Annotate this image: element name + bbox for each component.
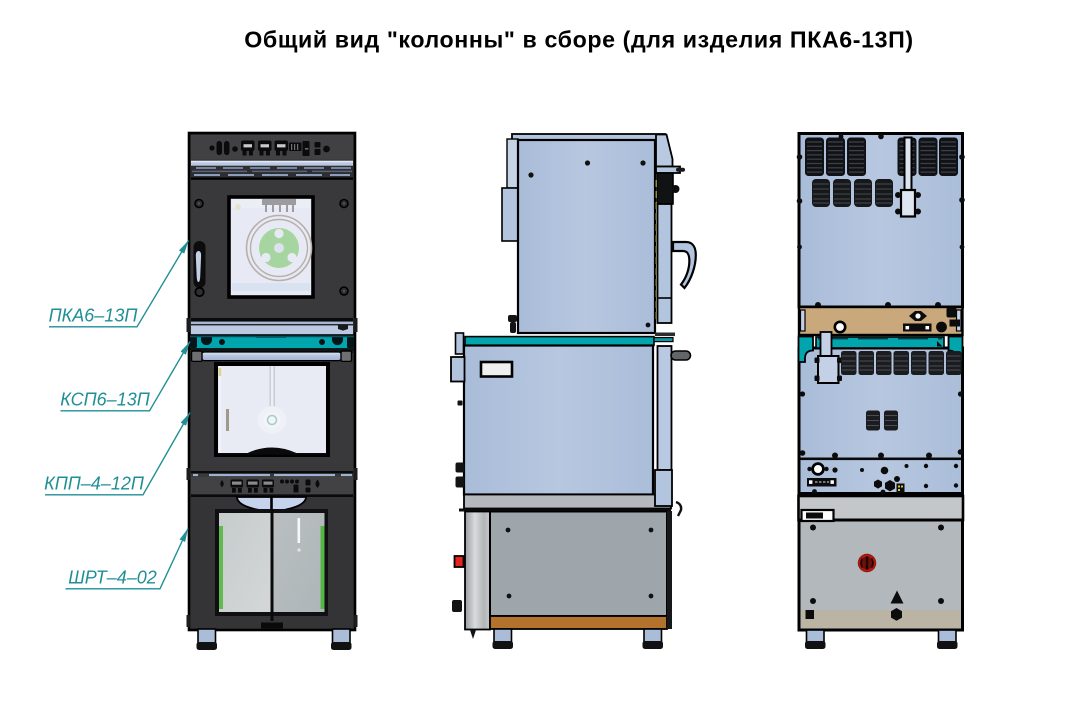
svg-text:ШРТ–4–02: ШРТ–4–02 xyxy=(68,568,157,588)
svg-text:Общий вид "колонны" в сборе (д: Общий вид "колонны" в сборе (для изделия… xyxy=(244,27,913,53)
svg-text:КСП6–13П: КСП6–13П xyxy=(60,390,150,410)
svg-text:ПКА6–13П: ПКА6–13П xyxy=(49,306,139,326)
svg-text:КПП–4–12П: КПП–4–12П xyxy=(44,474,145,494)
